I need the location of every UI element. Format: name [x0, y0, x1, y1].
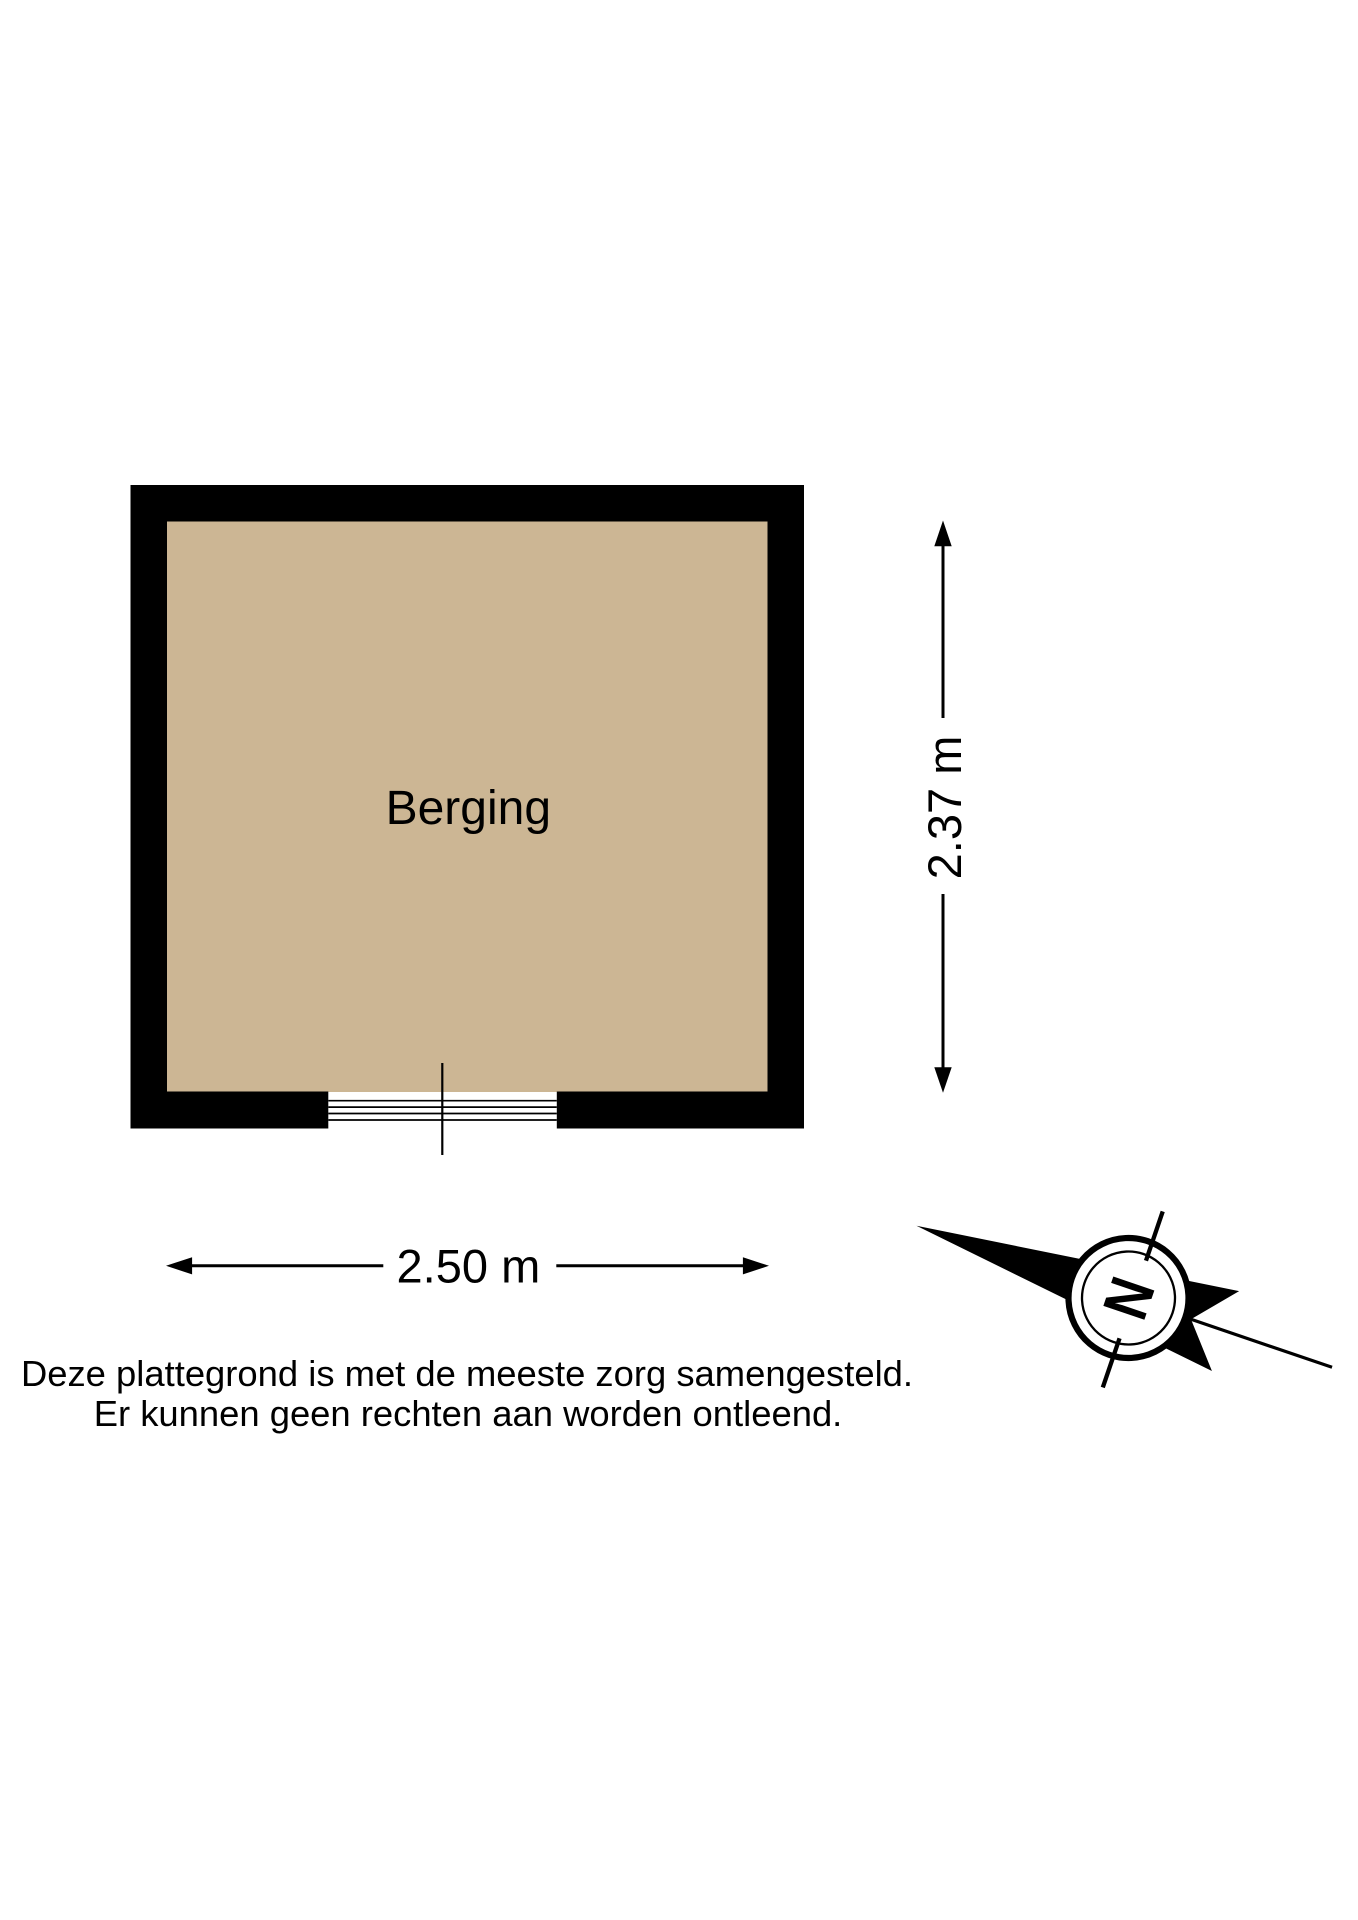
svg-text:2.50 m: 2.50 m: [397, 1239, 541, 1292]
svg-text:Er kunnen geen rechten aan wor: Er kunnen geen rechten aan worden ontlee…: [94, 1393, 843, 1434]
svg-text:Deze plattegrond is met de mee: Deze plattegrond is met de meeste zorg s…: [21, 1353, 913, 1394]
svg-text:Berging: Berging: [386, 782, 551, 835]
svg-text:2.37 m: 2.37 m: [918, 736, 971, 880]
